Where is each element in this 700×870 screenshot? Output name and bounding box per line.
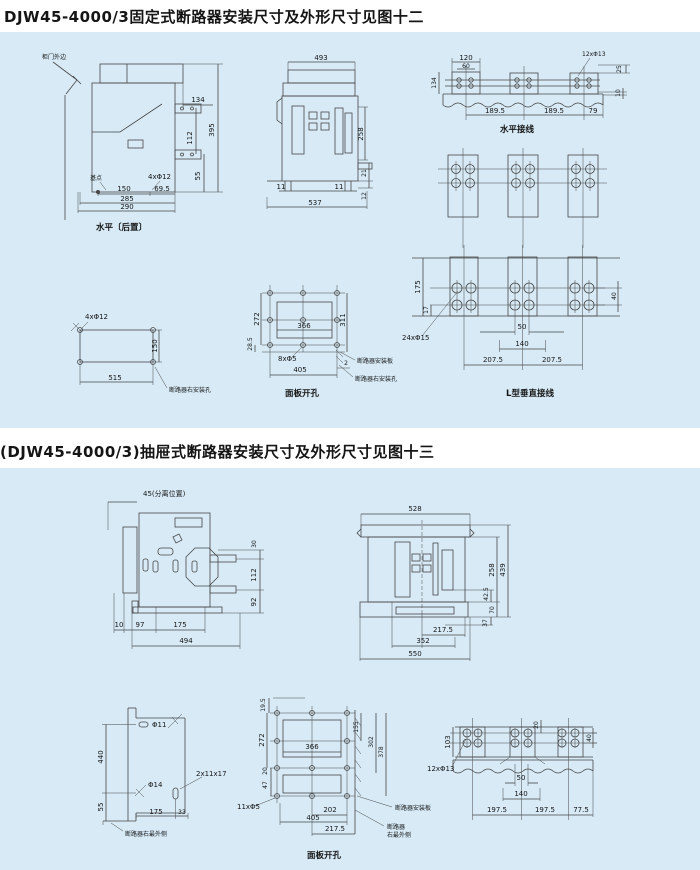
dim-28-5: 28.5 xyxy=(247,337,254,351)
dim-33: 33 xyxy=(178,809,186,816)
fixed-bolt-pattern xyxy=(435,148,615,248)
drawer-cutout-caption: 面板开孔 xyxy=(307,850,342,861)
dim-79: 79 xyxy=(589,107,598,115)
dim-42-5: 42.5 xyxy=(483,587,490,601)
drawer-front-view: 528 258 439 42.5 70 37 217.5 352 550 xyxy=(345,495,520,675)
lwire-caption: L型垂直接线 xyxy=(506,388,554,399)
base-point-label: 基点 xyxy=(90,174,102,182)
drawer-side-view: 45(分离位置) 30 112 92 10 97 175 494 xyxy=(90,480,290,675)
dim-311: 311 xyxy=(339,313,347,326)
dim-202: 202 xyxy=(323,806,336,814)
dim-112: 112 xyxy=(186,131,194,144)
dim-40: 40 xyxy=(611,292,618,300)
dim-155: 155 xyxy=(353,721,360,733)
dim-50: 50 xyxy=(518,323,527,331)
dim-494: 494 xyxy=(179,637,193,645)
holes-4x12-label: 4xΦ12 xyxy=(85,313,108,321)
dim-47: 47 xyxy=(262,781,269,789)
dim-175: 175 xyxy=(149,808,162,816)
dim-217-5: 217.5 xyxy=(433,626,453,634)
dim-515: 515 xyxy=(108,374,121,382)
dim-20: 20 xyxy=(533,721,540,729)
holes-8x5-label: 8xΦ5 xyxy=(278,355,297,363)
dim-10: 10 xyxy=(615,89,622,97)
dim-189-5-b: 189.5 xyxy=(544,107,564,115)
dim-92: 92 xyxy=(250,598,258,607)
holes-12x13-label: 12xΦ13 xyxy=(582,51,606,58)
dim-150: 150 xyxy=(117,185,130,193)
dim-40: 40 xyxy=(586,734,593,742)
holes-11x5-label: 11xΦ5 xyxy=(237,803,260,811)
dim-97: 97 xyxy=(136,621,145,629)
dim-197-5-a: 197.5 xyxy=(487,806,507,814)
dim-134: 134 xyxy=(191,96,205,104)
rightmost-edge-label: 断路器右最外侧 xyxy=(125,830,167,838)
dim-175: 175 xyxy=(414,280,422,293)
dim-134: 134 xyxy=(431,77,438,89)
dim-112: 112 xyxy=(250,568,258,581)
drawer-cutout-linework xyxy=(255,698,392,836)
dim-30: 30 xyxy=(251,540,258,548)
separation-label: 45(分离位置) xyxy=(143,489,186,498)
dim-290: 290 xyxy=(120,203,133,211)
dim-395: 395 xyxy=(208,123,216,136)
dim-103: 103 xyxy=(444,735,452,748)
dim-493: 493 xyxy=(314,54,327,62)
dim-439: 439 xyxy=(499,563,507,576)
fixed-front-view: 493 258 11 11 21 12 537 xyxy=(265,50,405,220)
dim-11-left: 11 xyxy=(277,183,286,191)
dim-150: 150 xyxy=(151,339,159,352)
cutout-caption: 面板开孔 xyxy=(285,388,320,399)
dim-37: 37 xyxy=(482,619,489,627)
holes-24x15-label: 24xΦ15 xyxy=(402,334,429,342)
section2-title: (DJW45-4000/3)抽屉式断路器安装尺寸及外形尺寸见图十三 xyxy=(0,441,435,462)
dim-21: 21 xyxy=(361,169,368,177)
dim-189-5-a: 189.5 xyxy=(485,107,505,115)
dim-197-5-b: 197.5 xyxy=(535,806,555,814)
dim-207-5-b: 207.5 xyxy=(542,356,562,364)
fixed-horizontal-wiring: 120 60 134 12xΦ13 25 10 189.5 189.5 79 水… xyxy=(430,48,700,148)
dim-17: 17 xyxy=(423,306,430,314)
door-edge-label: 柜门外边 xyxy=(42,53,66,61)
dim-528: 528 xyxy=(408,505,421,513)
dim-55: 55 xyxy=(97,803,105,812)
dim-366: 366 xyxy=(297,322,311,330)
dim-440: 440 xyxy=(97,750,105,763)
lwire-linework xyxy=(412,245,622,370)
dim-12: 12 xyxy=(361,192,368,200)
dim-11-right: 11 xyxy=(335,183,344,191)
fixed-side-linework xyxy=(53,62,223,220)
dim-2: 2 xyxy=(344,360,348,367)
dim-50: 50 xyxy=(517,774,526,782)
dim-phi11: Φ11 xyxy=(152,721,166,729)
right-mount-label: 断路器右安装孔 xyxy=(169,386,211,394)
dim-10: 10 xyxy=(115,621,124,629)
edge-label-line1: 断路器 xyxy=(387,823,405,831)
dim-207-5-a: 207.5 xyxy=(483,356,503,364)
dim-378: 378 xyxy=(378,746,385,758)
dim-258: 258 xyxy=(488,563,496,576)
hwire-caption: 水平接线 xyxy=(499,124,535,135)
dim-77-5: 77.5 xyxy=(573,806,589,814)
cutout-linework xyxy=(255,285,355,378)
fixed-right-mount: 4xΦ12 150 515 断路器右安装孔 xyxy=(55,295,245,407)
bolt-pattern-linework xyxy=(438,148,607,248)
dim-366: 366 xyxy=(305,743,319,751)
dim-55: 55 xyxy=(194,172,202,181)
dim-258: 258 xyxy=(357,127,365,140)
dim-140: 140 xyxy=(515,340,528,348)
dim-70: 70 xyxy=(489,606,496,614)
dim-550: 550 xyxy=(408,650,421,658)
holes-4x12-label: 4xΦ12 xyxy=(148,173,171,181)
holes-12x13-label: 12xΦ13 xyxy=(427,765,454,773)
edge-label-line2: 右最外侧 xyxy=(387,831,411,839)
dim-19-5: 19.5 xyxy=(260,698,267,712)
fixed-side-view: 柜门外边 134 112 55 395 基点 4xΦ12 150 69.5 28… xyxy=(40,50,260,235)
dim-405: 405 xyxy=(293,366,306,374)
slot-2x11x17-label: 2x11x17 xyxy=(196,770,227,778)
dim-352: 352 xyxy=(416,637,429,645)
dim-537: 537 xyxy=(308,199,321,207)
right-hole-label: 断路器右安装孔 xyxy=(355,375,397,383)
dim-217-5: 217.5 xyxy=(325,825,345,833)
dim-175: 175 xyxy=(173,621,186,629)
dim-140: 140 xyxy=(514,790,527,798)
dim-120: 120 xyxy=(459,54,472,62)
dim-302: 302 xyxy=(368,736,375,748)
dim-272: 272 xyxy=(253,312,261,325)
fixed-l-wiring: 175 17 24xΦ15 50 140 207.5 207.5 40 L型垂直… xyxy=(400,245,700,407)
dim-60: 60 xyxy=(462,63,470,70)
plate-label: 断路器安装板 xyxy=(357,357,393,365)
dim-phi14: Φ14 xyxy=(148,781,163,789)
dim-25: 25 xyxy=(616,65,623,73)
side-caption: 水平〔后置〕 xyxy=(95,222,147,233)
dim-285: 285 xyxy=(120,195,133,203)
vwire-linework xyxy=(450,718,597,820)
dim-272: 272 xyxy=(258,733,266,746)
fixed-panel-cutout: 272 366 311 28.5 8xΦ5 405 2 断路器安装板 断路器右安… xyxy=(240,280,405,412)
section1-title: DJW45-4000/3固定式断路器安装尺寸及外形尺寸见图十二 xyxy=(4,6,424,27)
dim-69-5: 69.5 xyxy=(154,185,170,193)
dim-405: 405 xyxy=(306,814,319,822)
drawer-vertical-wiring: 103 20 40 12xΦ13 50 140 197.5 197.5 77.5 xyxy=(425,698,700,856)
dim-20: 20 xyxy=(262,767,269,775)
